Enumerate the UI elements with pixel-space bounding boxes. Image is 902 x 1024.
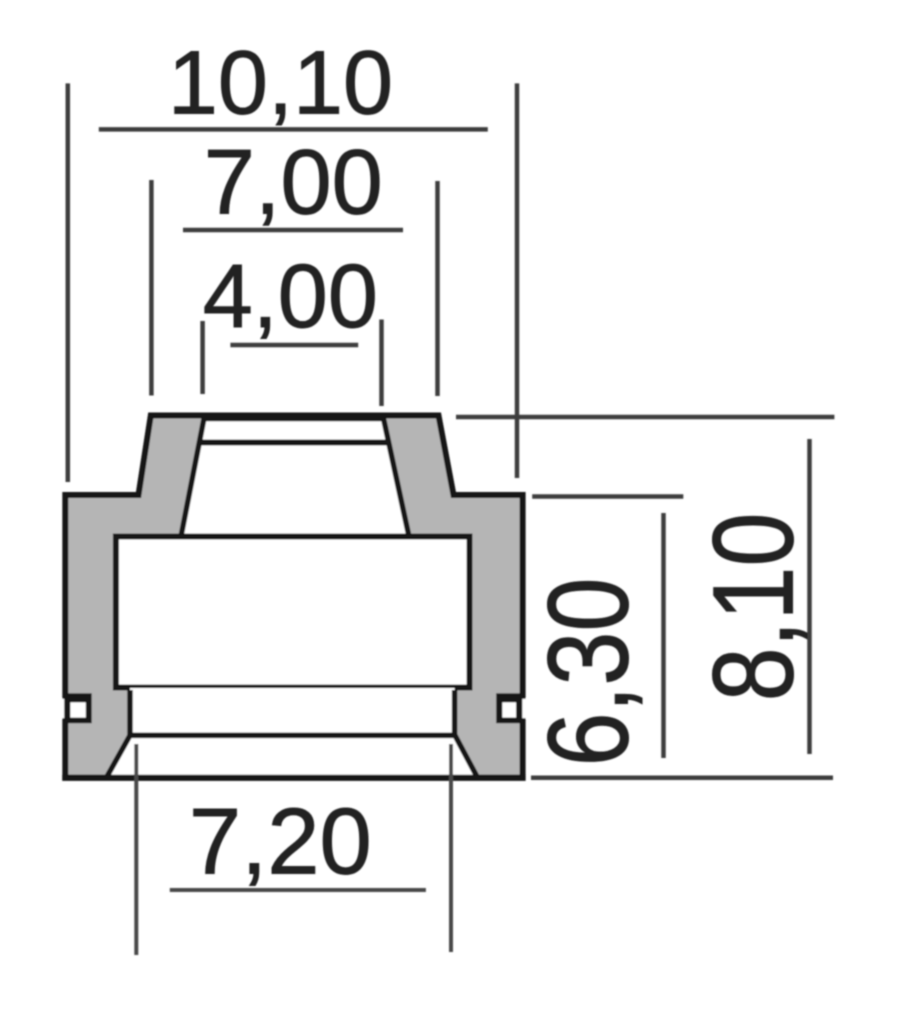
svg-text:7,00: 7,00 (204, 132, 383, 234)
svg-text:4,00: 4,00 (203, 247, 378, 347)
svg-text:8,10: 8,10 (690, 513, 817, 702)
svg-text:7,20: 7,20 (189, 789, 372, 894)
svg-text:6,30: 6,30 (525, 578, 652, 767)
svg-text:10,10: 10,10 (168, 34, 393, 134)
